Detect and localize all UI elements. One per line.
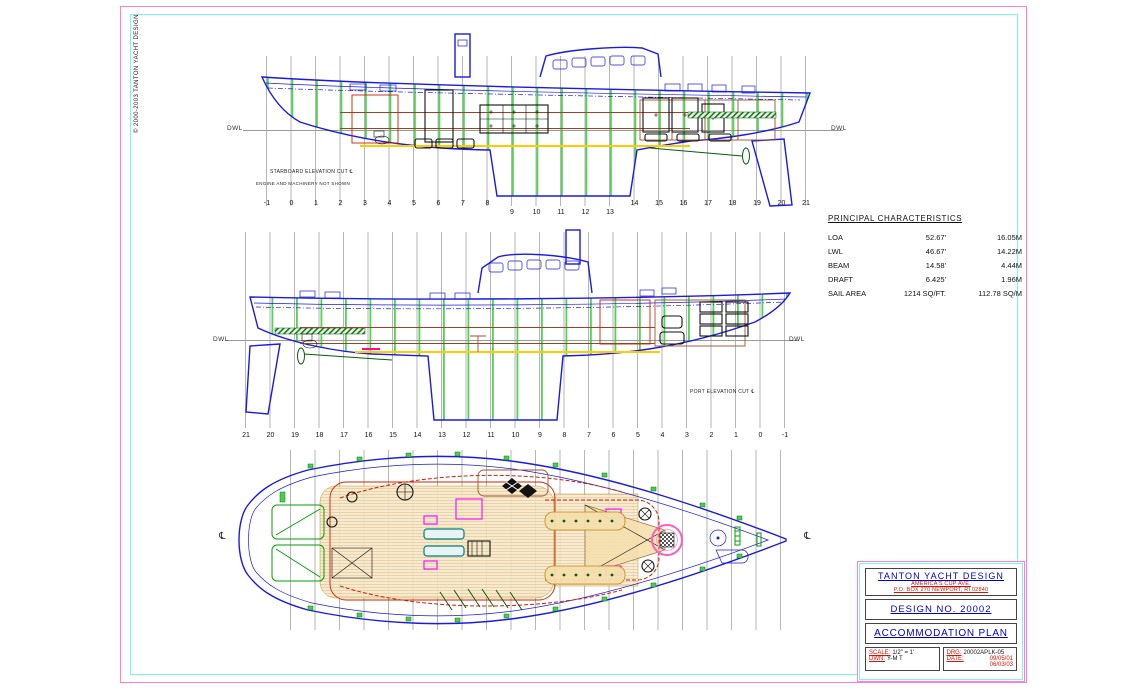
company-address-2: P.O. BOX 270 NEWPORT, RI 02840: [867, 587, 1015, 593]
station-number: 4: [383, 200, 397, 207]
station-number: 0: [285, 200, 299, 207]
centerline-symbol-left: ℄: [219, 531, 225, 542]
drawing-title-box: ACCOMMODATION PLAN: [865, 623, 1017, 644]
company-name: TANTON YACHT DESIGN: [867, 571, 1015, 581]
characteristics-row: DRAFT6.425'1.96M: [828, 275, 1024, 284]
station-number: 2: [705, 432, 719, 439]
title-block: TANTON YACHT DESIGN AMERICA'S CUP AVE. P…: [857, 561, 1025, 682]
station-number: 10: [509, 432, 523, 439]
station-number: 20: [264, 432, 278, 439]
station-number: 12: [579, 209, 593, 216]
dwn-label: DWN:: [869, 656, 885, 662]
port-view-caption: PORT ELEVATION CUT ℄: [690, 389, 755, 395]
station-number: 4: [656, 432, 670, 439]
characteristics-row: LOA52.67'16.05M: [828, 233, 1024, 242]
station-number: 5: [631, 432, 645, 439]
principal-characteristics: PRINCIPAL CHARACTERISTICS LOA52.67'16.05…: [828, 214, 1024, 303]
station-number: -1: [778, 432, 792, 439]
design-number: DESIGN NO. 20002: [867, 602, 1015, 617]
station-numbers-port: 2120191817161514131211109876543210-1: [239, 432, 792, 439]
characteristics-row: LWL46.67'14.22M: [828, 247, 1024, 256]
station-numbers-starboard: -10123456789101112131415161718192021: [260, 200, 813, 207]
station-number: 12: [460, 432, 474, 439]
station-number: 13: [603, 209, 617, 216]
station-number: 2: [334, 200, 348, 207]
station-number: 17: [337, 432, 351, 439]
station-number: 21: [239, 432, 253, 439]
design-number-box: DESIGN NO. 20002: [865, 599, 1017, 620]
drg-date-box: DRG:20002APLK-05 DATE:09/05/01 06/03/03: [943, 647, 1018, 671]
station-number: 8: [481, 200, 495, 207]
station-number: 0: [754, 432, 768, 439]
company-box: TANTON YACHT DESIGN AMERICA'S CUP AVE. P…: [865, 568, 1017, 596]
dwl-label-mid-right: DWL: [789, 336, 805, 343]
station-number: 10: [530, 209, 544, 216]
station-number: 3: [358, 200, 372, 207]
station-number: 9: [533, 432, 547, 439]
station-number: 21: [799, 200, 813, 207]
drawing-title: ACCOMMODATION PLAN: [867, 626, 1015, 641]
characteristics-row: SAIL AREA1214 SQ/FT.112.78 SQ/M: [828, 289, 1024, 298]
scale-box: SCALE:1/2" = 1' DWN:Y-M T: [865, 647, 940, 671]
characteristics-row: BEAM14.58'4.44M: [828, 261, 1024, 270]
station-number: 6: [607, 432, 621, 439]
title-block-inner: TANTON YACHT DESIGN AMERICA'S CUP AVE. P…: [859, 563, 1023, 680]
station-number: 8: [558, 432, 572, 439]
station-number: 18: [726, 200, 740, 207]
station-number: 11: [484, 432, 498, 439]
station-number: 14: [411, 432, 425, 439]
station-number: 1: [729, 432, 743, 439]
station-number: 14: [628, 200, 642, 207]
station-number: 1: [309, 200, 323, 207]
starboard-view-note: ENGINE AND MACHINERY NOT SHOWN: [256, 181, 350, 186]
station-number: 7: [456, 200, 470, 207]
station-number: 20: [775, 200, 789, 207]
station-number: 7: [582, 432, 596, 439]
dwn-value: Y-M T: [887, 656, 903, 662]
station-number: 18: [313, 432, 327, 439]
title-block-bottom-row: SCALE:1/2" = 1' DWN:Y-M T DRG:20002APLK-…: [865, 647, 1017, 671]
dwl-label-top-left: DWL: [227, 125, 243, 132]
station-number: 19: [288, 432, 302, 439]
station-number: 17: [701, 200, 715, 207]
station-number: 13: [435, 432, 449, 439]
station-number: 9: [505, 209, 519, 216]
characteristics-title: PRINCIPAL CHARACTERISTICS: [828, 214, 1024, 223]
starboard-view-caption: STARBOARD ELEVATION CUT ℄: [270, 169, 353, 175]
centerline-symbol-right: ℄: [804, 531, 810, 542]
station-number: 16: [362, 432, 376, 439]
copyright-text: © 2000-2003 TANTON YACHT DESIGN: [134, 8, 140, 133]
station-number: 5: [407, 200, 421, 207]
accommodation-plan-drawing: [239, 452, 786, 624]
station-number: 19: [750, 200, 764, 207]
station-number: 16: [677, 200, 691, 207]
station-number: 6: [432, 200, 446, 207]
dwl-label-top-right: DWL: [831, 125, 847, 132]
station-number: 15: [652, 200, 666, 207]
station-number: -1: [260, 200, 274, 207]
station-number: 3: [680, 432, 694, 439]
date-value-2: 06/03/03: [947, 662, 1014, 668]
station-number: 15: [386, 432, 400, 439]
date-label: DATE:: [947, 656, 964, 662]
station-number: 11: [554, 209, 568, 216]
dwl-label-mid-left: DWL: [213, 336, 229, 343]
